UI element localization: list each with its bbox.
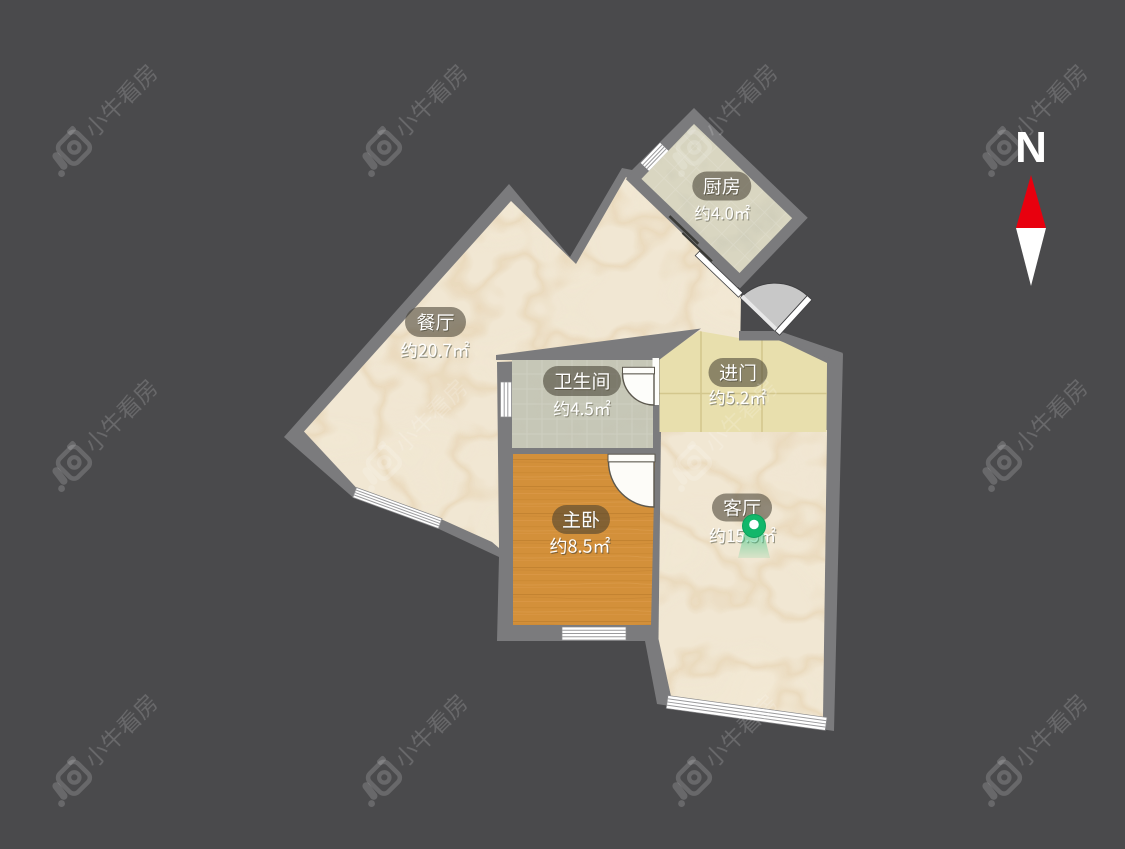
svg-text:N: N (1015, 123, 1047, 172)
